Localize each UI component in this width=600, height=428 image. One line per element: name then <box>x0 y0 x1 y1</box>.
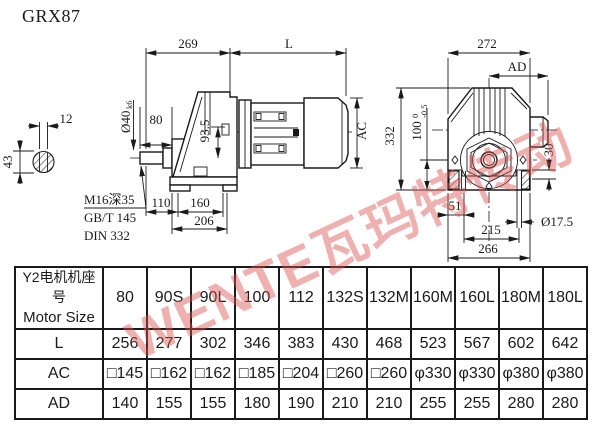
dim-215: 215 <box>481 222 501 237</box>
dim-30: 30 <box>541 144 556 157</box>
dim-272: 272 <box>477 36 497 51</box>
gearmotor-end-view: 272 AD 332 100 0 -0.5 30 <box>382 36 573 262</box>
col-header: 180L <box>543 267 587 329</box>
cell: 302 <box>191 329 235 359</box>
cell: □162 <box>191 359 235 389</box>
cell: 280 <box>543 389 587 419</box>
col-header: 160M <box>411 267 455 329</box>
dim-shaft-dia-tol: k6 <box>124 101 134 110</box>
dim-AD: AD <box>508 59 527 74</box>
table-row-AC: AC □145 □162 □162 □185 □204 □260 □260 φ3… <box>15 359 587 389</box>
cell: 567 <box>455 329 499 359</box>
table-row-L: L 256 277 302 346 383 430 468 523 567 60… <box>15 329 587 359</box>
motor-size-table: Y2电机机座号 Motor Size 80 90S 90L 100 112 13… <box>14 266 588 420</box>
cell: 430 <box>323 329 367 359</box>
dim-332: 332 <box>382 126 397 146</box>
cell: 210 <box>367 389 411 419</box>
dim-206: 206 <box>194 213 214 228</box>
cell: φ330 <box>411 359 455 389</box>
dim-160: 160 <box>190 195 210 210</box>
cell: □145 <box>103 359 147 389</box>
dim-hole-dia: Ø17.5 <box>541 214 573 229</box>
cell: □185 <box>235 359 279 389</box>
dim-93-5: 93.5 <box>197 120 212 143</box>
cell: 523 <box>411 329 455 359</box>
row-label: AC <box>15 359 103 389</box>
col-header: 132M <box>367 267 411 329</box>
cell: 642 <box>543 329 587 359</box>
table-header-row: Y2电机机座号 Motor Size 80 90S 90L 100 112 13… <box>15 267 587 329</box>
cell: 180 <box>235 389 279 419</box>
dim-269: 269 <box>178 36 198 51</box>
note-din: DIN 332 <box>84 228 130 243</box>
note-gbt: GB/T 145 <box>84 210 136 225</box>
dim-key-width: 12 <box>60 111 73 126</box>
cell: 277 <box>147 329 191 359</box>
col-header: 132S <box>323 267 367 329</box>
col-header: 90S <box>147 267 191 329</box>
col-header: 80 <box>103 267 147 329</box>
cell: 346 <box>235 329 279 359</box>
cell: φ330 <box>455 359 499 389</box>
cell: □260 <box>367 359 411 389</box>
dim-51: 51 <box>449 198 462 213</box>
cell: □204 <box>279 359 323 389</box>
cell: □260 <box>323 359 367 389</box>
cell: 468 <box>367 329 411 359</box>
gearmotor-side-view: 269 L 80 Ø40 k6 93.5 AC <box>118 36 369 234</box>
cell: 256 <box>103 329 147 359</box>
technical-drawing: GRX87 12 43 M16深35 GB/T 145 DIN 332 <box>0 0 600 268</box>
col-header: 100 <box>235 267 279 329</box>
col-header: 90L <box>191 267 235 329</box>
note-thread: M16深35 <box>84 192 135 207</box>
col-header: 112 <box>279 267 323 329</box>
col-header: 160L <box>455 267 499 329</box>
cell: φ380 <box>499 359 543 389</box>
cell: 190 <box>279 389 323 419</box>
cell: 140 <box>103 389 147 419</box>
cell: 155 <box>147 389 191 419</box>
row-label: AD <box>15 389 103 419</box>
dim-100-tol-lower: -0.5 <box>419 105 429 118</box>
cell: 155 <box>191 389 235 419</box>
dim-shaft-dia-43: 43 <box>0 156 15 169</box>
cell: □162 <box>147 359 191 389</box>
cell: 280 <box>499 389 543 419</box>
dim-shaft-dia: Ø40 <box>118 111 133 133</box>
dim-80: 80 <box>150 112 163 127</box>
dim-266: 266 <box>478 241 498 256</box>
page-title: GRX87 <box>22 6 81 26</box>
dim-110: 110 <box>151 195 170 210</box>
header-motor-size-en: Motor Size <box>16 307 102 328</box>
table-row-AD: AD 140 155 155 180 190 210 210 255 255 2… <box>15 389 587 419</box>
dim-L: L <box>285 36 293 51</box>
header-motor-size: Y2电机机座号 Motor Size <box>15 267 103 329</box>
cell: φ380 <box>543 359 587 389</box>
dim-100: 100 <box>409 121 424 141</box>
col-header: 180M <box>499 267 543 329</box>
cell: 210 <box>323 389 367 419</box>
catalog-page: GRX87 12 43 M16深35 GB/T 145 DIN 332 <box>0 0 600 428</box>
header-motor-size-cn: Y2电机机座号 <box>16 268 102 307</box>
cell: 383 <box>279 329 323 359</box>
cell: 602 <box>499 329 543 359</box>
row-label: L <box>15 329 103 359</box>
cell: 255 <box>455 389 499 419</box>
cell: 255 <box>411 389 455 419</box>
dim-AC: AC <box>354 122 369 140</box>
